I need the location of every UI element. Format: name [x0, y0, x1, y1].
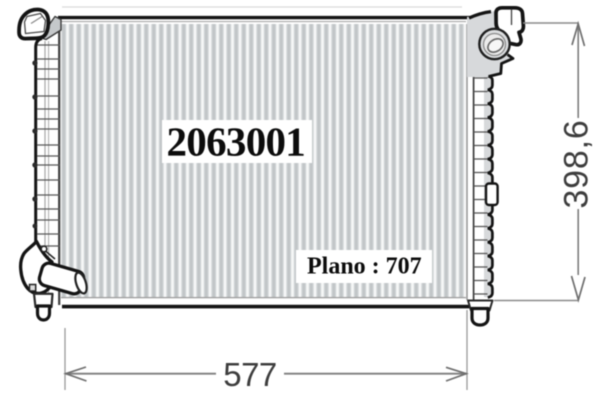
svg-text:398,6: 398,6: [558, 119, 596, 208]
svg-text:2063001: 2063001: [167, 119, 306, 165]
svg-text:Plano : 707: Plano : 707: [307, 254, 422, 280]
svg-text:577: 577: [223, 356, 277, 393]
